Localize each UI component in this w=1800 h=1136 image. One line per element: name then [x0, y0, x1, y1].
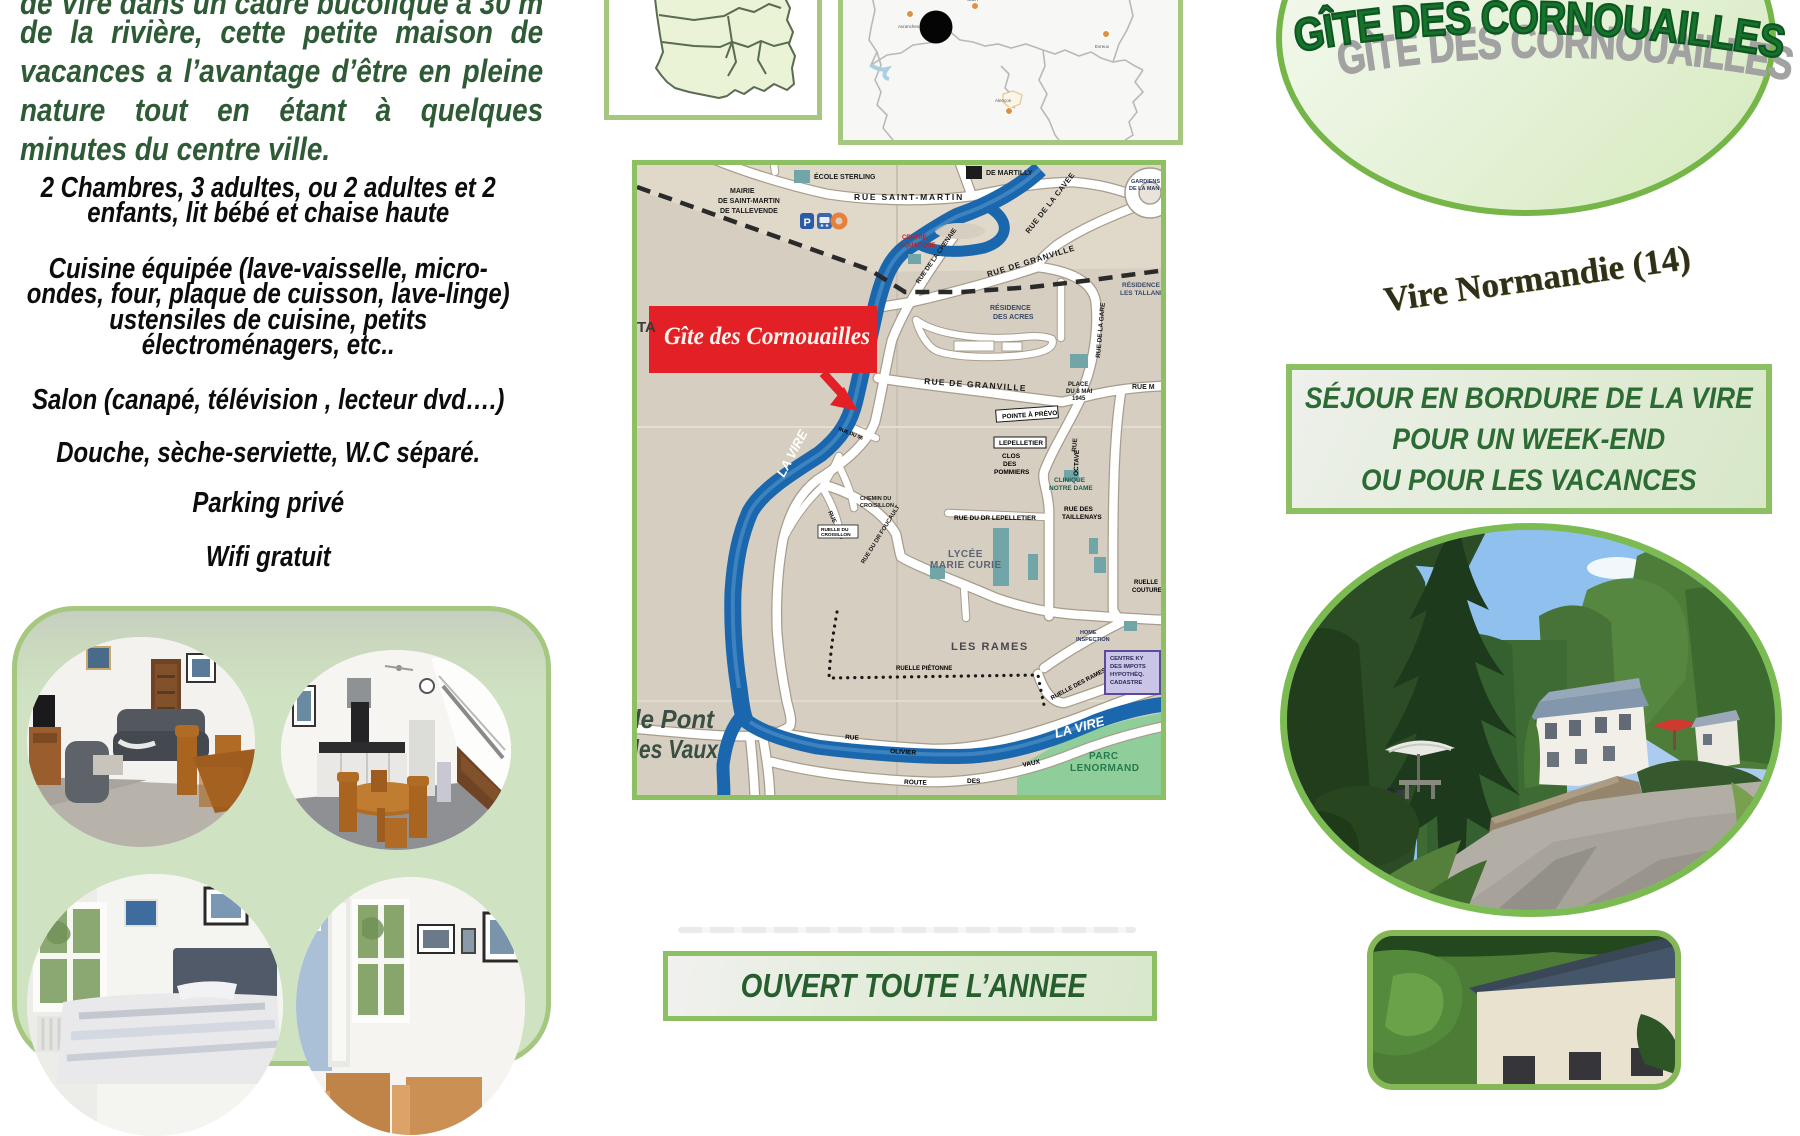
svg-text:CLOS: CLOS [1002, 453, 1021, 460]
svg-text:LES RAMES: LES RAMES [951, 641, 1029, 653]
svg-text:POMMIERS: POMMIERS [994, 469, 1030, 476]
svg-text:RÉSIDENCE: RÉSIDENCE [990, 303, 1031, 312]
svg-text:DES: DES [1003, 461, 1017, 468]
svg-text:RÉSIDENCE: RÉSIDENCE [1122, 280, 1161, 289]
svg-text:ROUTE: ROUTE [904, 779, 928, 787]
svg-text:AQUATIQUE: AQUATIQUE [900, 243, 936, 249]
svg-text:RUE DU DR LEPELLETIER: RUE DU DR LEPELLETIER [954, 515, 1036, 522]
svg-text:HYPOTHÈQ.: HYPOTHÈQ. [1110, 670, 1145, 678]
svg-text:OCTAVE: OCTAVE [1073, 449, 1081, 476]
svg-text:TAILLENAYS: TAILLENAYS [1062, 514, 1102, 521]
svg-text:MARIE CURIE: MARIE CURIE [930, 560, 1002, 571]
svg-text:HOME: HOME [1080, 630, 1097, 636]
svg-text:Gîte des Cornouailles: Gîte des Cornouailles [664, 321, 870, 350]
svg-text:LES TALLAND: LES TALLAND [1120, 290, 1165, 297]
svg-text:DES IMPOTS: DES IMPOTS [1110, 664, 1146, 670]
svg-text:PLACE: PLACE [1068, 382, 1088, 388]
svg-text:PARC: PARC [1089, 751, 1119, 762]
svg-text:RUELLE PIÉTONNE: RUELLE PIÉTONNE [896, 664, 952, 672]
svg-text:DES ACRES: DES ACRES [993, 314, 1034, 321]
svg-text:TA: TA [637, 319, 656, 336]
svg-text:COUTURE: COUTURE [1132, 588, 1162, 594]
svg-text:NOTRE DAME: NOTRE DAME [1049, 485, 1093, 492]
svg-text:RUE M: RUE M [1132, 384, 1155, 391]
svg-text:le Pont: le Pont [634, 704, 715, 734]
svg-text:LENORMAND: LENORMAND [1070, 763, 1140, 774]
svg-text:RUE DES: RUE DES [1064, 506, 1094, 513]
svg-text:RUE: RUE [845, 734, 860, 742]
svg-text:CHEMIN DU: CHEMIN DU [860, 496, 891, 502]
svg-text:CADASTRE: CADASTRE [1110, 680, 1142, 686]
svg-text:1945: 1945 [1072, 396, 1086, 402]
svg-text:CLINIQUE: CLINIQUE [1054, 477, 1086, 484]
svg-text:DU 8 MAI: DU 8 MAI [1066, 389, 1093, 395]
svg-text:CENTRE KY: CENTRE KY [1110, 656, 1144, 662]
svg-text:des Vaux: des Vaux [632, 734, 719, 764]
svg-text:DES: DES [967, 778, 981, 785]
svg-text:CROISILLON: CROISILLON [821, 532, 851, 538]
svg-text:INSPECTION: INSPECTION [1076, 637, 1110, 643]
svg-text:LYCÉE: LYCÉE [948, 547, 983, 560]
svg-text:RUELLE: RUELLE [1134, 580, 1158, 586]
svg-text:LEPELLETIER: LEPELLETIER [999, 440, 1043, 447]
svg-text:CROISILLON: CROISILLON [860, 503, 894, 509]
